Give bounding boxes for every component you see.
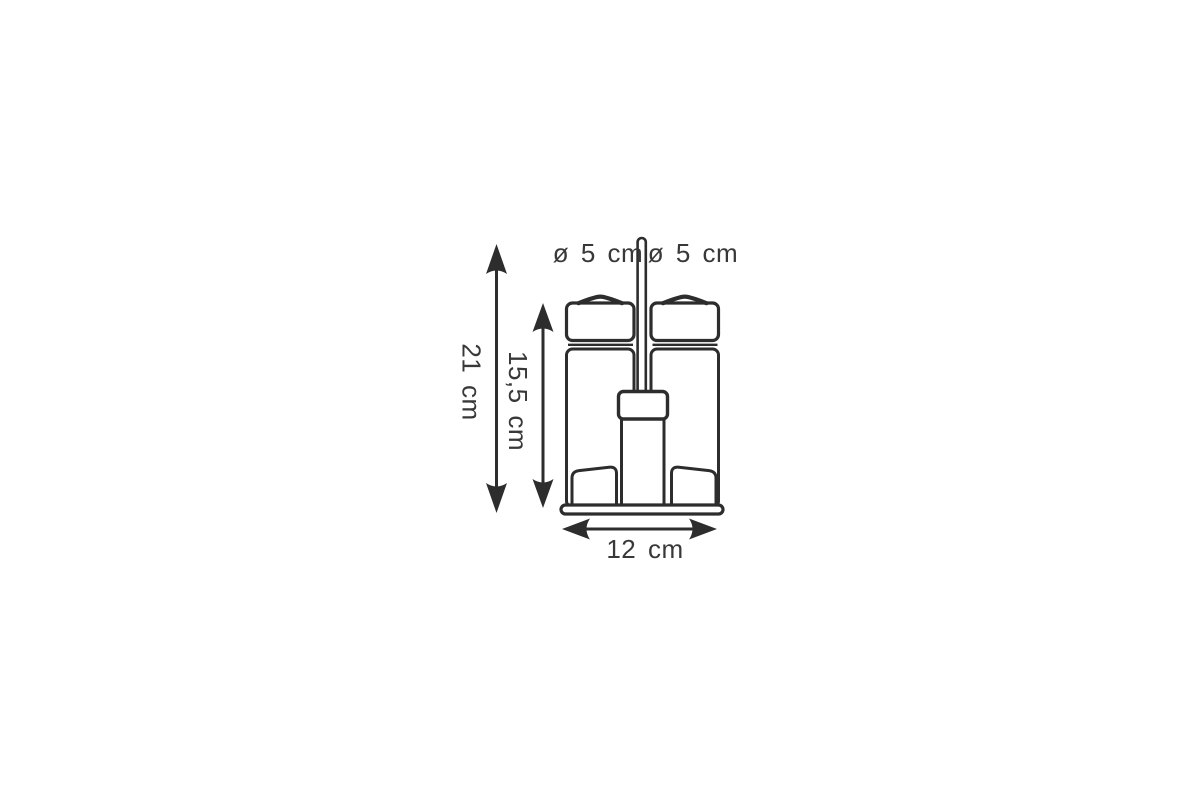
label-left-diameter: ø 5 cm	[553, 238, 643, 268]
diagram-canvas: 21 cm 15,5 cm ø 5 cm ø 5 cm 12 cm	[0, 0, 1200, 800]
label-right-diameter: ø 5 cm	[648, 238, 738, 268]
stand-post-column	[622, 405, 665, 510]
stand-base-plate	[561, 505, 723, 514]
label-base-width: 12 cm	[606, 534, 683, 564]
label-bottle-height: 15,5 cm	[503, 351, 533, 451]
tray-wall-left	[572, 467, 617, 507]
left-bottle-cap	[567, 303, 635, 341]
tray-wall-right	[672, 467, 717, 507]
label-total-height: 21 cm	[457, 343, 487, 420]
cruet-set-dimension-drawing: 21 cm 15,5 cm ø 5 cm ø 5 cm 12 cm	[0, 0, 1200, 800]
stand-post-block	[619, 392, 668, 420]
right-bottle-cap	[651, 303, 719, 341]
